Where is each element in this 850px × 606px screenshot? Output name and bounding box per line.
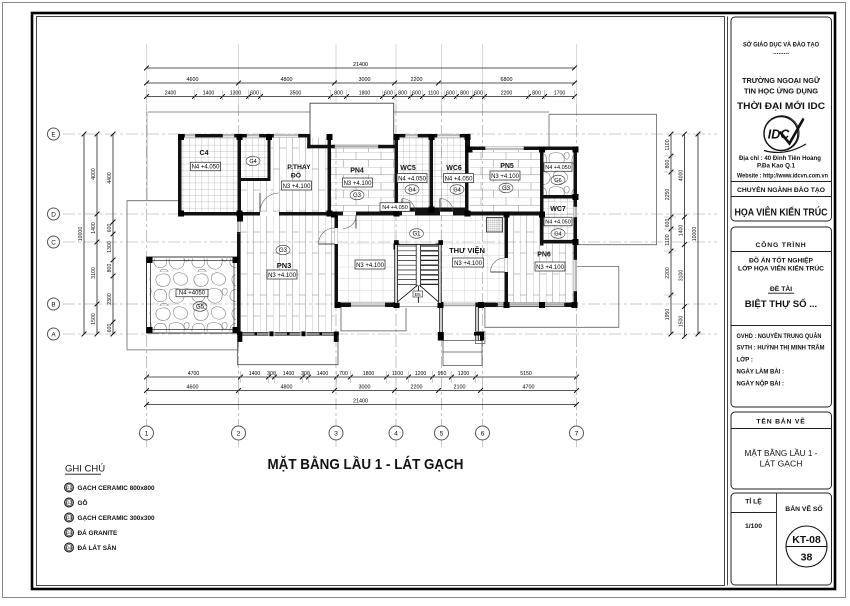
svg-text:Địa chỉ : 40 Đinh Tiên Hoàng: Địa chỉ : 40 Đinh Tiên Hoàng [739, 155, 821, 162]
svg-text:TRƯỜNG NGOẠI NGỮ: TRƯỜNG NGOẠI NGỮ [742, 76, 821, 85]
svg-text:3000: 3000 [359, 77, 371, 83]
svg-text:G3: G3 [502, 186, 511, 192]
svg-text:2200: 2200 [665, 267, 671, 279]
svg-text:2250: 2250 [665, 189, 671, 201]
svg-text:1100: 1100 [428, 90, 439, 96]
svg-text:2300: 2300 [107, 293, 113, 305]
svg-text:800: 800 [460, 90, 469, 96]
svg-text:G1: G1 [66, 485, 72, 490]
svg-text:E: E [51, 131, 55, 138]
svg-text:1800: 1800 [359, 90, 371, 96]
svg-text:4400: 4400 [107, 172, 113, 184]
svg-text:600: 600 [446, 90, 455, 96]
svg-text:4700: 4700 [523, 384, 535, 390]
svg-text:7: 7 [575, 431, 579, 438]
svg-text:G4: G4 [249, 159, 256, 165]
svg-text:1100: 1100 [665, 139, 671, 150]
svg-text:GVHD : NGUYỄN TRUNG QUÂN: GVHD : NGUYỄN TRUNG QUÂN [737, 333, 822, 340]
svg-text:1700: 1700 [554, 90, 566, 96]
svg-text:G4: G4 [66, 530, 72, 535]
svg-text:THƯ VIỆN: THƯ VIỆN [449, 246, 485, 255]
svg-text:D: D [51, 211, 56, 218]
svg-text:2: 2 [237, 431, 241, 438]
svg-text:N3 +4.100: N3 +4.100 [356, 263, 385, 269]
svg-text:3500: 3500 [290, 90, 302, 96]
svg-text:2200: 2200 [501, 90, 513, 96]
svg-text:KT-08: KT-08 [792, 534, 821, 546]
svg-text:P.Đa Kao Q.1: P.Đa Kao Q.1 [757, 163, 796, 170]
svg-text:CHUYÊN NGÀNH ĐÀO TẠO: CHUYÊN NGÀNH ĐÀO TẠO [737, 185, 825, 194]
svg-text:G3: G3 [66, 515, 72, 520]
svg-text:21400: 21400 [353, 62, 368, 68]
svg-text:800: 800 [532, 90, 541, 96]
svg-text:1400: 1400 [249, 371, 261, 377]
svg-text:1400: 1400 [678, 225, 684, 237]
svg-text:A: A [51, 331, 56, 338]
svg-text:1200: 1200 [415, 371, 427, 377]
svg-text:800: 800 [398, 90, 407, 96]
svg-text:800: 800 [665, 160, 671, 169]
svg-text:P.THAY: P.THAY [287, 164, 311, 171]
svg-text:1950: 1950 [665, 309, 671, 321]
svg-text:G4: G4 [554, 232, 561, 238]
svg-text:PN5: PN5 [500, 163, 514, 170]
svg-text:1300: 1300 [107, 241, 113, 253]
svg-text:NGÀY NỘP BÀI :: NGÀY NỘP BÀI : [737, 380, 784, 388]
svg-text:2100: 2100 [454, 384, 466, 390]
svg-text:WC5: WC5 [400, 165, 416, 172]
svg-text:G5: G5 [196, 305, 205, 311]
svg-text:2400: 2400 [165, 90, 177, 96]
svg-text:N3 +4.100: N3 +4.100 [536, 265, 565, 271]
svg-text:LÁT GẠCH: LÁT GẠCH [760, 459, 803, 469]
svg-text:1400: 1400 [91, 222, 97, 234]
svg-text:21400: 21400 [353, 398, 368, 404]
svg-text:GỖ: GỖ [78, 498, 88, 507]
svg-text:1800: 1800 [363, 371, 375, 377]
svg-text:4: 4 [394, 431, 398, 438]
svg-text:1400: 1400 [317, 371, 329, 377]
svg-text:GHI CHÚ: GHI CHÚ [65, 464, 105, 475]
svg-text:TIN HỌC ỨNG DỤNG: TIN HỌC ỨNG DỤNG [744, 87, 818, 96]
svg-text:800: 800 [334, 90, 343, 96]
svg-text:G2: G2 [66, 500, 72, 505]
svg-text:1500: 1500 [91, 313, 97, 325]
svg-text:38: 38 [801, 552, 813, 564]
svg-text:3100: 3100 [91, 267, 97, 279]
svg-text:600: 600 [107, 324, 113, 333]
svg-text:800: 800 [107, 264, 113, 273]
svg-text:4600: 4600 [187, 77, 199, 83]
svg-text:G4: G4 [453, 188, 460, 194]
svg-text:G3: G3 [353, 193, 362, 199]
svg-text:C4: C4 [200, 150, 209, 157]
svg-text:600: 600 [412, 90, 421, 96]
svg-text:4000: 4000 [678, 170, 684, 182]
svg-text:CÔNG TRÌNH: CÔNG TRÌNH [755, 240, 806, 249]
svg-text:3: 3 [334, 431, 338, 438]
svg-text:LỚP :: LỚP : [737, 356, 753, 364]
svg-text:NGÀY LÀM BÀI :: NGÀY LÀM BÀI : [737, 369, 785, 376]
svg-text:1500: 1500 [678, 316, 684, 328]
svg-text:TÊN BẢN VẼ: TÊN BẢN VẼ [756, 417, 805, 426]
svg-text:5: 5 [440, 431, 444, 438]
svg-text:.........: ......... [773, 49, 789, 56]
svg-text:GẠCH CERAMIC 800x800: GẠCH CERAMIC 800x800 [78, 485, 156, 492]
svg-text:THỜI ĐẠI MỚI IDC: THỜI ĐẠI MỚI IDC [737, 100, 825, 112]
svg-text:2200: 2200 [411, 384, 423, 390]
svg-text:N3 +4.100: N3 +4.100 [283, 184, 312, 190]
svg-text:600: 600 [474, 90, 483, 96]
svg-text:N4 +4.050: N4 +4.050 [445, 176, 474, 182]
svg-text:BIỆT THỰ SỐ ...: BIỆT THỰ SỐ ... [745, 298, 817, 310]
svg-text:WC7: WC7 [550, 206, 566, 213]
svg-text:HỌA VIÊN KIẾN TRÚC: HỌA VIÊN KIẾN TRÚC [735, 207, 828, 219]
svg-text:PN4: PN4 [350, 168, 364, 175]
svg-text:1100: 1100 [665, 234, 671, 245]
svg-text:SVTH : HUỲNH THỊ MINH TRÂM: SVTH : HUỲNH THỊ MINH TRÂM [737, 345, 825, 352]
svg-text:N3 +4.100: N3 +4.100 [491, 174, 520, 180]
svg-text:N4 +4.050: N4 +4.050 [398, 176, 427, 182]
svg-text:N4 +4.050: N4 +4.050 [382, 205, 408, 211]
svg-text:N4 +4.050: N4 +4.050 [192, 165, 221, 171]
svg-text:5150: 5150 [520, 371, 532, 377]
svg-text:1200: 1200 [458, 371, 470, 377]
svg-text:MẶT BẰNG LẦU 1 -: MẶT BẰNG LẦU 1 - [745, 448, 818, 458]
svg-text:WC6: WC6 [446, 165, 462, 172]
svg-text:10000: 10000 [692, 227, 698, 242]
svg-text:600: 600 [384, 90, 393, 96]
svg-text:N3 +4.100: N3 +4.100 [344, 181, 373, 187]
svg-text:Đ5: Đ5 [415, 292, 421, 297]
svg-text:4000: 4000 [91, 168, 97, 180]
svg-text:3100: 3100 [678, 270, 684, 282]
svg-text:6: 6 [481, 431, 485, 438]
svg-text:600: 600 [665, 219, 671, 228]
svg-text:ĐÁ LÁT SÂN: ĐÁ LÁT SÂN [78, 543, 117, 552]
svg-text:2200: 2200 [411, 77, 423, 83]
svg-text:N4 +4.050: N4 +4.050 [545, 165, 571, 171]
svg-text:1: 1 [145, 431, 149, 438]
svg-text:Website : http://www.idcvn.com: Website : http://www.idcvn.com.vn [737, 174, 828, 180]
svg-text:PN6: PN6 [537, 252, 551, 259]
svg-text:1400: 1400 [283, 371, 295, 377]
svg-text:G5: G5 [66, 545, 72, 550]
svg-text:4800: 4800 [281, 384, 293, 390]
svg-text:1400: 1400 [203, 90, 215, 96]
svg-text:1300: 1300 [230, 90, 242, 96]
svg-text:4600: 4600 [187, 384, 199, 390]
svg-text:600: 600 [107, 224, 113, 233]
svg-text:GẠCH CERAMIC 300x300: GẠCH CERAMIC 300x300 [78, 515, 156, 522]
svg-text:C: C [51, 239, 56, 246]
svg-text:G1: G1 [412, 232, 421, 238]
svg-text:ĐÁ GRANITE: ĐÁ GRANITE [78, 528, 119, 537]
svg-text:1/100: 1/100 [745, 523, 762, 530]
svg-text:700: 700 [339, 371, 348, 377]
svg-text:1100: 1100 [392, 371, 403, 377]
svg-text:N4 +4.050: N4 +4.050 [545, 220, 571, 226]
svg-text:G6: G6 [554, 178, 561, 184]
svg-text:600: 600 [250, 90, 259, 96]
svg-text:6800: 6800 [501, 77, 513, 83]
svg-text:PN3: PN3 [277, 261, 292, 270]
svg-text:N3 +4.100: N3 +4.100 [268, 273, 297, 279]
svg-text:B: B [51, 301, 55, 308]
svg-text:4800: 4800 [281, 77, 293, 83]
svg-text:4700: 4700 [188, 371, 200, 377]
svg-text:SỞ GIÁO DỤC VÀ ĐÀO TẠO: SỞ GIÁO DỤC VÀ ĐÀO TẠO [743, 40, 819, 49]
svg-text:MẶT BẰNG LẦU 1 - LÁT GẠCH: MẶT BẰNG LẦU 1 - LÁT GẠCH [268, 455, 464, 473]
svg-text:3000: 3000 [359, 384, 371, 390]
svg-text:TỈ LỆ: TỈ LỆ [745, 497, 762, 506]
svg-text:N4 +4050: N4 +4050 [179, 291, 206, 297]
svg-text:10000: 10000 [78, 227, 84, 242]
svg-text:G4: G4 [408, 188, 415, 194]
svg-text:N3 +4.100: N3 +4.100 [454, 261, 483, 267]
svg-text:G3: G3 [279, 248, 288, 254]
svg-text:950: 950 [438, 371, 447, 377]
